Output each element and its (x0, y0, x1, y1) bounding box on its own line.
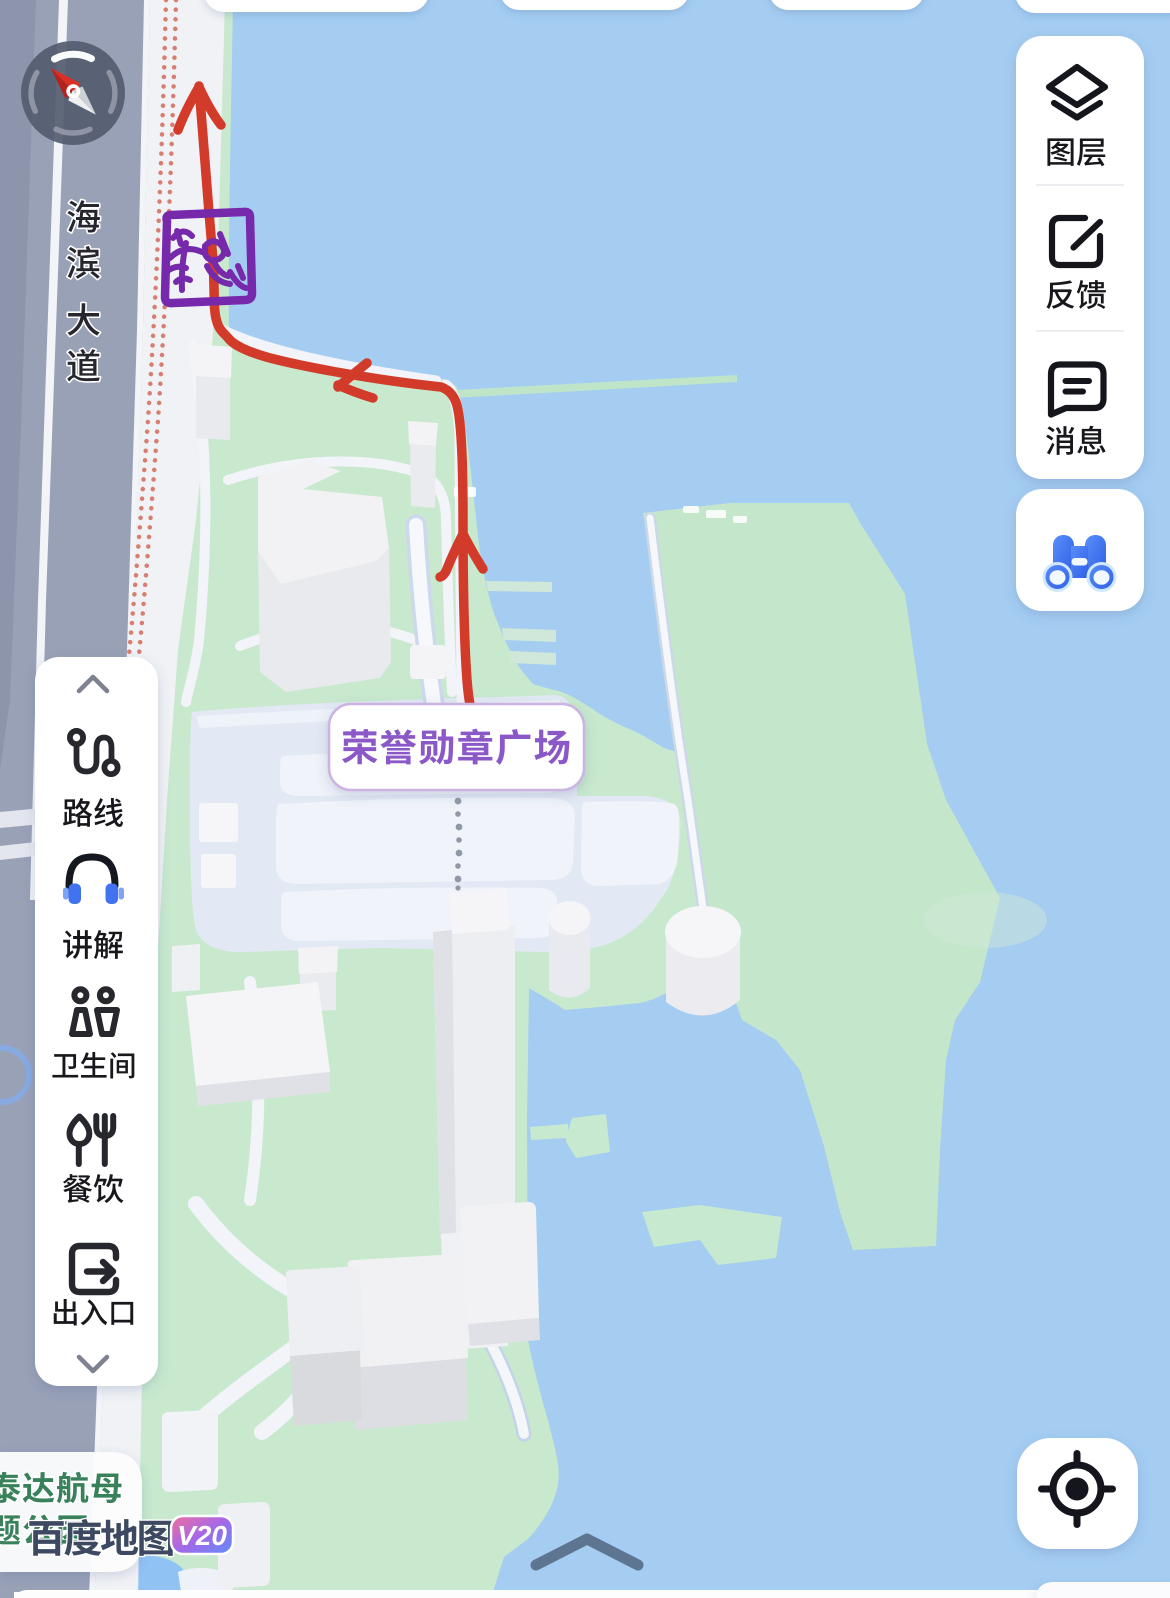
svg-text:V20: V20 (177, 1520, 227, 1551)
